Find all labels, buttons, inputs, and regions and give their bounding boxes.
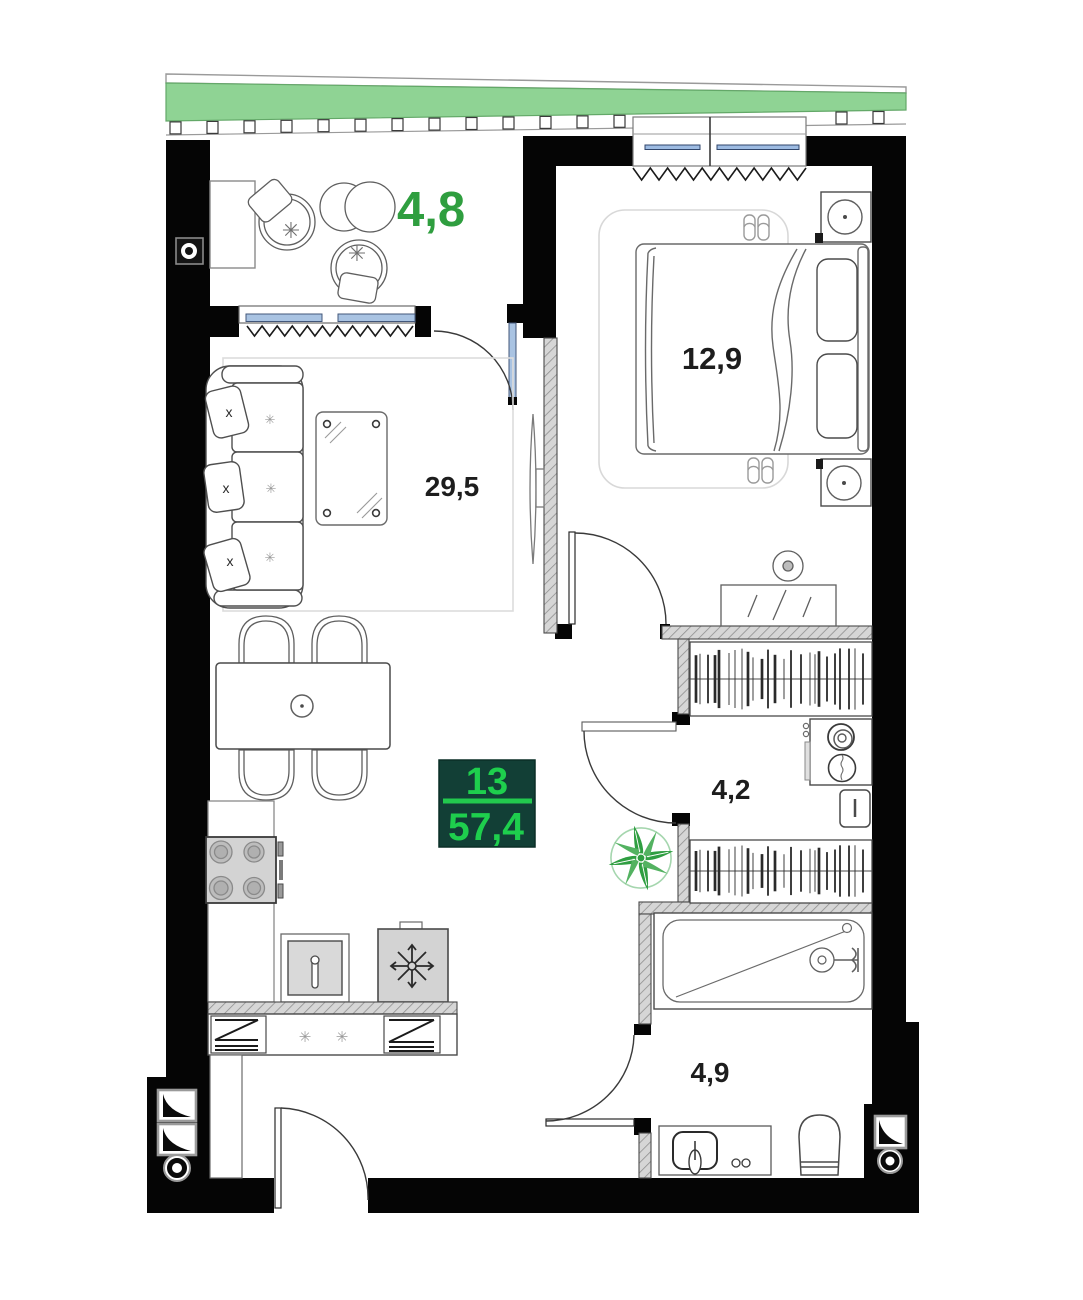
svg-text:✳: ✳ [282, 218, 300, 243]
svg-text:4,2: 4,2 [712, 774, 751, 805]
svg-text:57,4: 57,4 [448, 806, 524, 849]
svg-text:✳: ✳ [266, 481, 277, 496]
svg-text:4,8: 4,8 [397, 183, 465, 237]
svg-text:x: x [223, 480, 230, 496]
svg-text:✳: ✳ [299, 1029, 312, 1046]
svg-text:29,5: 29,5 [425, 471, 480, 502]
svg-text:4,9: 4,9 [691, 1057, 730, 1088]
svg-text:13: 13 [466, 761, 508, 803]
svg-text:x: x [226, 404, 233, 420]
svg-text:x: x [227, 553, 234, 569]
svg-text:✳: ✳ [336, 1029, 349, 1046]
svg-text:✳: ✳ [348, 241, 366, 266]
svg-text:✳: ✳ [265, 550, 276, 565]
svg-text:✳: ✳ [265, 412, 276, 427]
svg-text:12,9: 12,9 [682, 341, 742, 376]
